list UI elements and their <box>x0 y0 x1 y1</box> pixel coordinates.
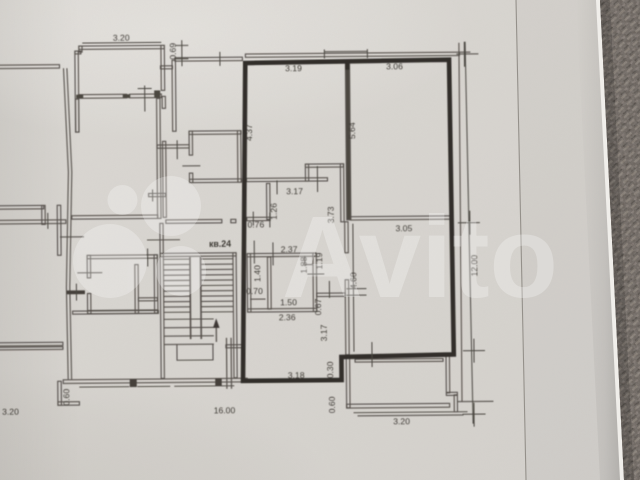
svg-text:3.20: 3.20 <box>113 33 130 43</box>
svg-text:0.69: 0.69 <box>168 43 178 60</box>
svg-text:3.06: 3.06 <box>386 61 403 71</box>
svg-text:0.60: 0.60 <box>61 389 71 406</box>
svg-text:0.70: 0.70 <box>246 286 263 296</box>
svg-text:1.40: 1.40 <box>252 265 262 282</box>
svg-text:Avito: Avito <box>282 192 558 322</box>
svg-text:3.20: 3.20 <box>393 416 410 426</box>
svg-text:3.18: 3.18 <box>288 370 305 380</box>
svg-text:3.19: 3.19 <box>285 63 302 73</box>
svg-text:16.00: 16.00 <box>214 405 236 415</box>
svg-text:5.64: 5.64 <box>347 122 357 139</box>
svg-text:0.30: 0.30 <box>325 361 335 378</box>
svg-text:3.20: 3.20 <box>2 407 19 417</box>
svg-text:3.17: 3.17 <box>319 324 329 341</box>
svg-text:4.37: 4.37 <box>244 124 254 141</box>
svg-text:кв.24: кв.24 <box>209 239 231 249</box>
svg-text:0.76: 0.76 <box>247 219 264 229</box>
svg-text:0.60: 0.60 <box>327 396 337 413</box>
svg-text:1.26: 1.26 <box>269 203 279 220</box>
